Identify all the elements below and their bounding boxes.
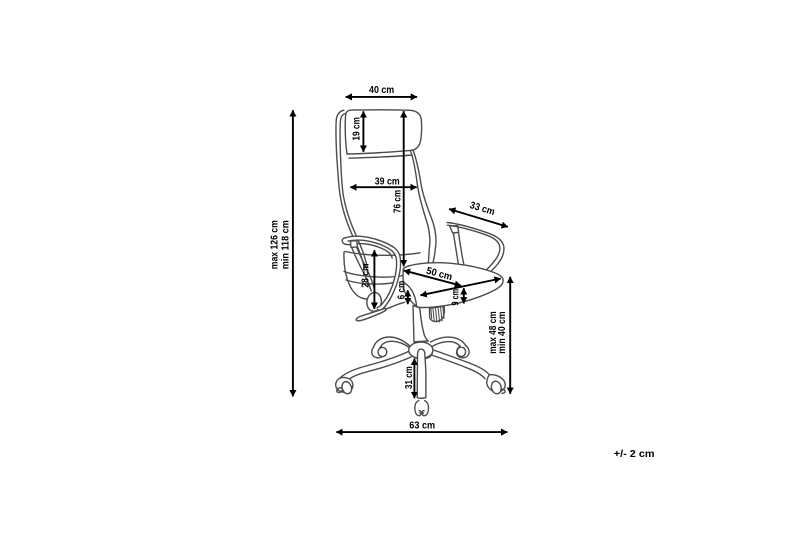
svg-text:31 cm: 31 cm (404, 366, 415, 389)
svg-text:9 cm: 9 cm (451, 289, 462, 306)
svg-text:min 40 cm: min 40 cm (497, 311, 508, 353)
svg-text:28 cm: 28 cm (361, 263, 372, 287)
svg-text:19 cm: 19 cm (352, 117, 363, 141)
svg-text:max 126 cm: max 126 cm (270, 220, 281, 269)
svg-text:+/- 2 cm: +/- 2 cm (614, 448, 655, 460)
svg-text:76 cm: 76 cm (392, 190, 403, 213)
svg-text:6 cm: 6 cm (397, 281, 408, 300)
svg-text:40 cm: 40 cm (369, 85, 394, 96)
svg-text:39 cm: 39 cm (375, 176, 400, 187)
svg-text:63 cm: 63 cm (409, 421, 435, 432)
svg-text:min 118 cm: min 118 cm (281, 220, 292, 269)
